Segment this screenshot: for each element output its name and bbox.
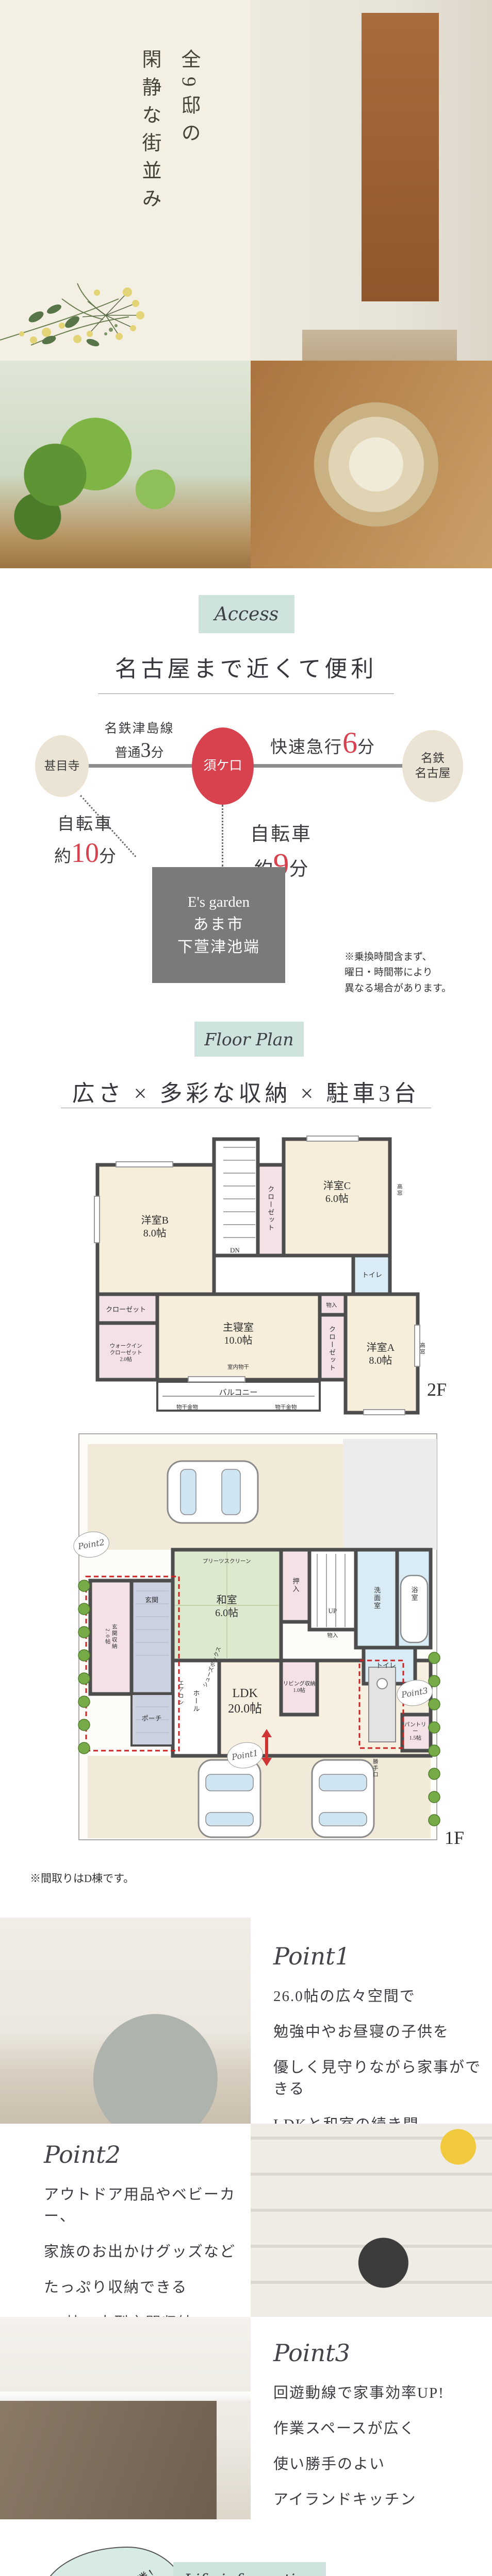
point1-block: Point1 26.0帖の広々空間で勉強中やお昼寝の子供を優しく見守りながら家事… bbox=[273, 1942, 485, 2134]
photo-table-setting bbox=[251, 361, 492, 568]
station-jimokuji: 甚目寺 bbox=[35, 735, 89, 797]
site-address: 下萱津池端 bbox=[177, 940, 260, 955]
floor1-tag: 1F bbox=[445, 1827, 464, 1849]
point1-lines: 26.0帖の広々空間で勉強中やお昼寝の子供を優しく見守りながら家事ができるLDK… bbox=[273, 1984, 485, 2134]
room-label: 主寝室 10.0帖 bbox=[223, 1321, 254, 1347]
access-divider bbox=[98, 693, 394, 694]
room-label: トイレ bbox=[376, 1662, 396, 1670]
point1-label: Point1 bbox=[273, 1942, 485, 1970]
hero-vertical-title: 全9邸の 閑静な街並み bbox=[130, 49, 208, 216]
room-label: ホール bbox=[191, 1690, 200, 1713]
room-label: プリーツスクリーン bbox=[203, 1558, 251, 1565]
room-label: LDK 20.0帖 bbox=[228, 1686, 262, 1717]
room-label: ポーチ bbox=[142, 1715, 162, 1723]
photo-entrance-storage bbox=[251, 2124, 492, 2317]
floorplan-1f: 玄関収納 2.0帖玄関ポーチホールシューズボックス和室 6.0帖プリーツスクリー… bbox=[75, 1426, 441, 1856]
life-ribbon: Life information bbox=[173, 2562, 326, 2576]
station-sukaguchi: 須ケ口 bbox=[192, 727, 254, 805]
site-brand: E's garden bbox=[188, 895, 250, 910]
photo-island-kitchen bbox=[0, 2317, 251, 2519]
room-label: 玄関 bbox=[145, 1596, 158, 1604]
point-text-line: 使い勝手のよい bbox=[273, 2452, 485, 2473]
floorplan-2f: 洋室B 8.0帖洋室C 6.0帖主寝室 10.0帖洋室A 8.0帖クローゼットク… bbox=[85, 1129, 425, 1418]
floorplan-note: ※間取りはD棟です。 bbox=[30, 1870, 134, 1886]
point2-lines: アウトドア用品やベビーカー、家族のお出かけグッズなどたっぷり収納できる2.0帖の… bbox=[44, 2182, 250, 2332]
point-text-line: 回遊動線で家事効率UP! bbox=[273, 2381, 485, 2402]
room-label: 勝手口 bbox=[372, 1758, 379, 1778]
park-bubble-text: 公園がすぐ隣! bbox=[72, 2563, 159, 2576]
point-text-line: たっぷり収納できる bbox=[44, 2275, 250, 2297]
point-text-line: 26.0帖の広々空間で bbox=[273, 1984, 485, 2006]
rail-left-segment-label: 名鉄津島線 普通3分 bbox=[85, 718, 193, 762]
room-label: バルコニー bbox=[219, 1388, 258, 1398]
point-text-line: 優しく見守りながら家事ができる bbox=[273, 2055, 485, 2098]
point2-block: Point2 アウトドア用品やベビーカー、家族のお出かけグッズなどたっぷり収納で… bbox=[44, 2141, 250, 2332]
room-label: クローゼット bbox=[266, 1185, 274, 1232]
room-label: 浴室 bbox=[409, 1586, 418, 1602]
room-label: 物入 bbox=[327, 1632, 338, 1639]
life-ribbon-label: Life information bbox=[184, 2571, 315, 2576]
floorplan-1f-drawing bbox=[75, 1426, 441, 1856]
room-label: DN bbox=[230, 1246, 240, 1255]
room-label: 物入 bbox=[326, 1302, 337, 1309]
point-text-line: 作業スペースが広く bbox=[273, 2416, 485, 2438]
room-label: 物干金物 bbox=[275, 1404, 297, 1411]
room-label: 洋室A 8.0帖 bbox=[367, 1342, 395, 1367]
photo-living-room bbox=[0, 1918, 251, 2124]
access-note: ※乗換時間含まず、 曜日・時間帯により 異なる場合があります。 bbox=[345, 950, 451, 996]
floorplan-ribbon-label: Floor Plan bbox=[204, 1029, 293, 1049]
rail-right-segment-label: 快速急行6分 bbox=[242, 725, 402, 760]
room-label: 和室 6.0帖 bbox=[215, 1594, 238, 1620]
room-label: クローゼット bbox=[327, 1326, 336, 1372]
bike-time-left: 自転車 約10分 bbox=[36, 810, 134, 869]
room-label: 室内物干 bbox=[227, 1364, 249, 1370]
room-label: 高窓 bbox=[419, 1342, 425, 1355]
room-label: 押入 bbox=[291, 1578, 299, 1593]
access-ribbon: Access bbox=[199, 595, 294, 633]
room-label: 洗面室 bbox=[372, 1587, 381, 1610]
photo-dining-room bbox=[251, 0, 492, 384]
point3-lines: 回遊動線で家事効率UP!作業スペースが広く使い勝手のよいアイランドキッチン bbox=[273, 2381, 485, 2509]
site-name-box: E's garden あま市 下萱津池端 bbox=[152, 867, 285, 983]
site-city: あま市 bbox=[193, 917, 244, 933]
park-bubble: 公園がすぐ隣! bbox=[41, 2547, 190, 2576]
station-meitetsu-nagoya: 名鉄 名古屋 bbox=[402, 730, 463, 802]
room-label: トイレ bbox=[362, 1271, 382, 1279]
photo-window-plants bbox=[0, 361, 251, 568]
point-text-line: アウトドア用品やベビーカー、 bbox=[44, 2182, 250, 2226]
room-label: 洋室C 6.0帖 bbox=[323, 1180, 351, 1206]
point3-label: Point3 bbox=[273, 2339, 485, 2367]
room-label: 洋室B 8.0帖 bbox=[141, 1214, 169, 1240]
room-label: リビング収納 1.0帖 bbox=[283, 1681, 316, 1694]
room-label: クローゼット bbox=[106, 1306, 146, 1314]
room-label: UP bbox=[329, 1607, 337, 1615]
floor2-tag: 2F bbox=[427, 1379, 447, 1400]
room-label: 高窓 bbox=[396, 1183, 403, 1196]
point2-label: Point2 bbox=[44, 2141, 250, 2168]
point3-block: Point3 回遊動線で家事効率UP!作業スペースが広く使い勝手のよいアイランド… bbox=[273, 2339, 485, 2509]
point-text-line: 家族のお出かけグッズなど bbox=[44, 2240, 250, 2261]
room-label: パントリー 1.5帖 bbox=[402, 1721, 428, 1741]
access-title: 名古屋まで近くて便利 bbox=[0, 650, 492, 683]
room-label: 物干金物 bbox=[176, 1404, 198, 1411]
floorplan-divider bbox=[61, 1108, 431, 1108]
point-text-line: アイランドキッチン bbox=[273, 2487, 485, 2509]
flyer-page: 全9邸の 閑静な街並み Access 名古屋まで近くて便利 bbox=[0, 0, 492, 2576]
access-ribbon-label: Access bbox=[215, 604, 279, 625]
point-text-line: 勉強中やお昼寝の子供を bbox=[273, 2020, 485, 2041]
floorplan-ribbon: Floor Plan bbox=[194, 1022, 304, 1057]
room-label: 玄関収納 2.0帖 bbox=[104, 1624, 117, 1650]
flower-illustration bbox=[0, 278, 155, 361]
room-label: エアコン bbox=[177, 1680, 184, 1706]
floorplan-title: 広さ × 多彩な収納 × 駐車3台 bbox=[0, 1075, 492, 1108]
dotted-connector-center bbox=[222, 805, 223, 867]
room-label: ウォークイン クローゼット 2.0帖 bbox=[110, 1343, 142, 1363]
